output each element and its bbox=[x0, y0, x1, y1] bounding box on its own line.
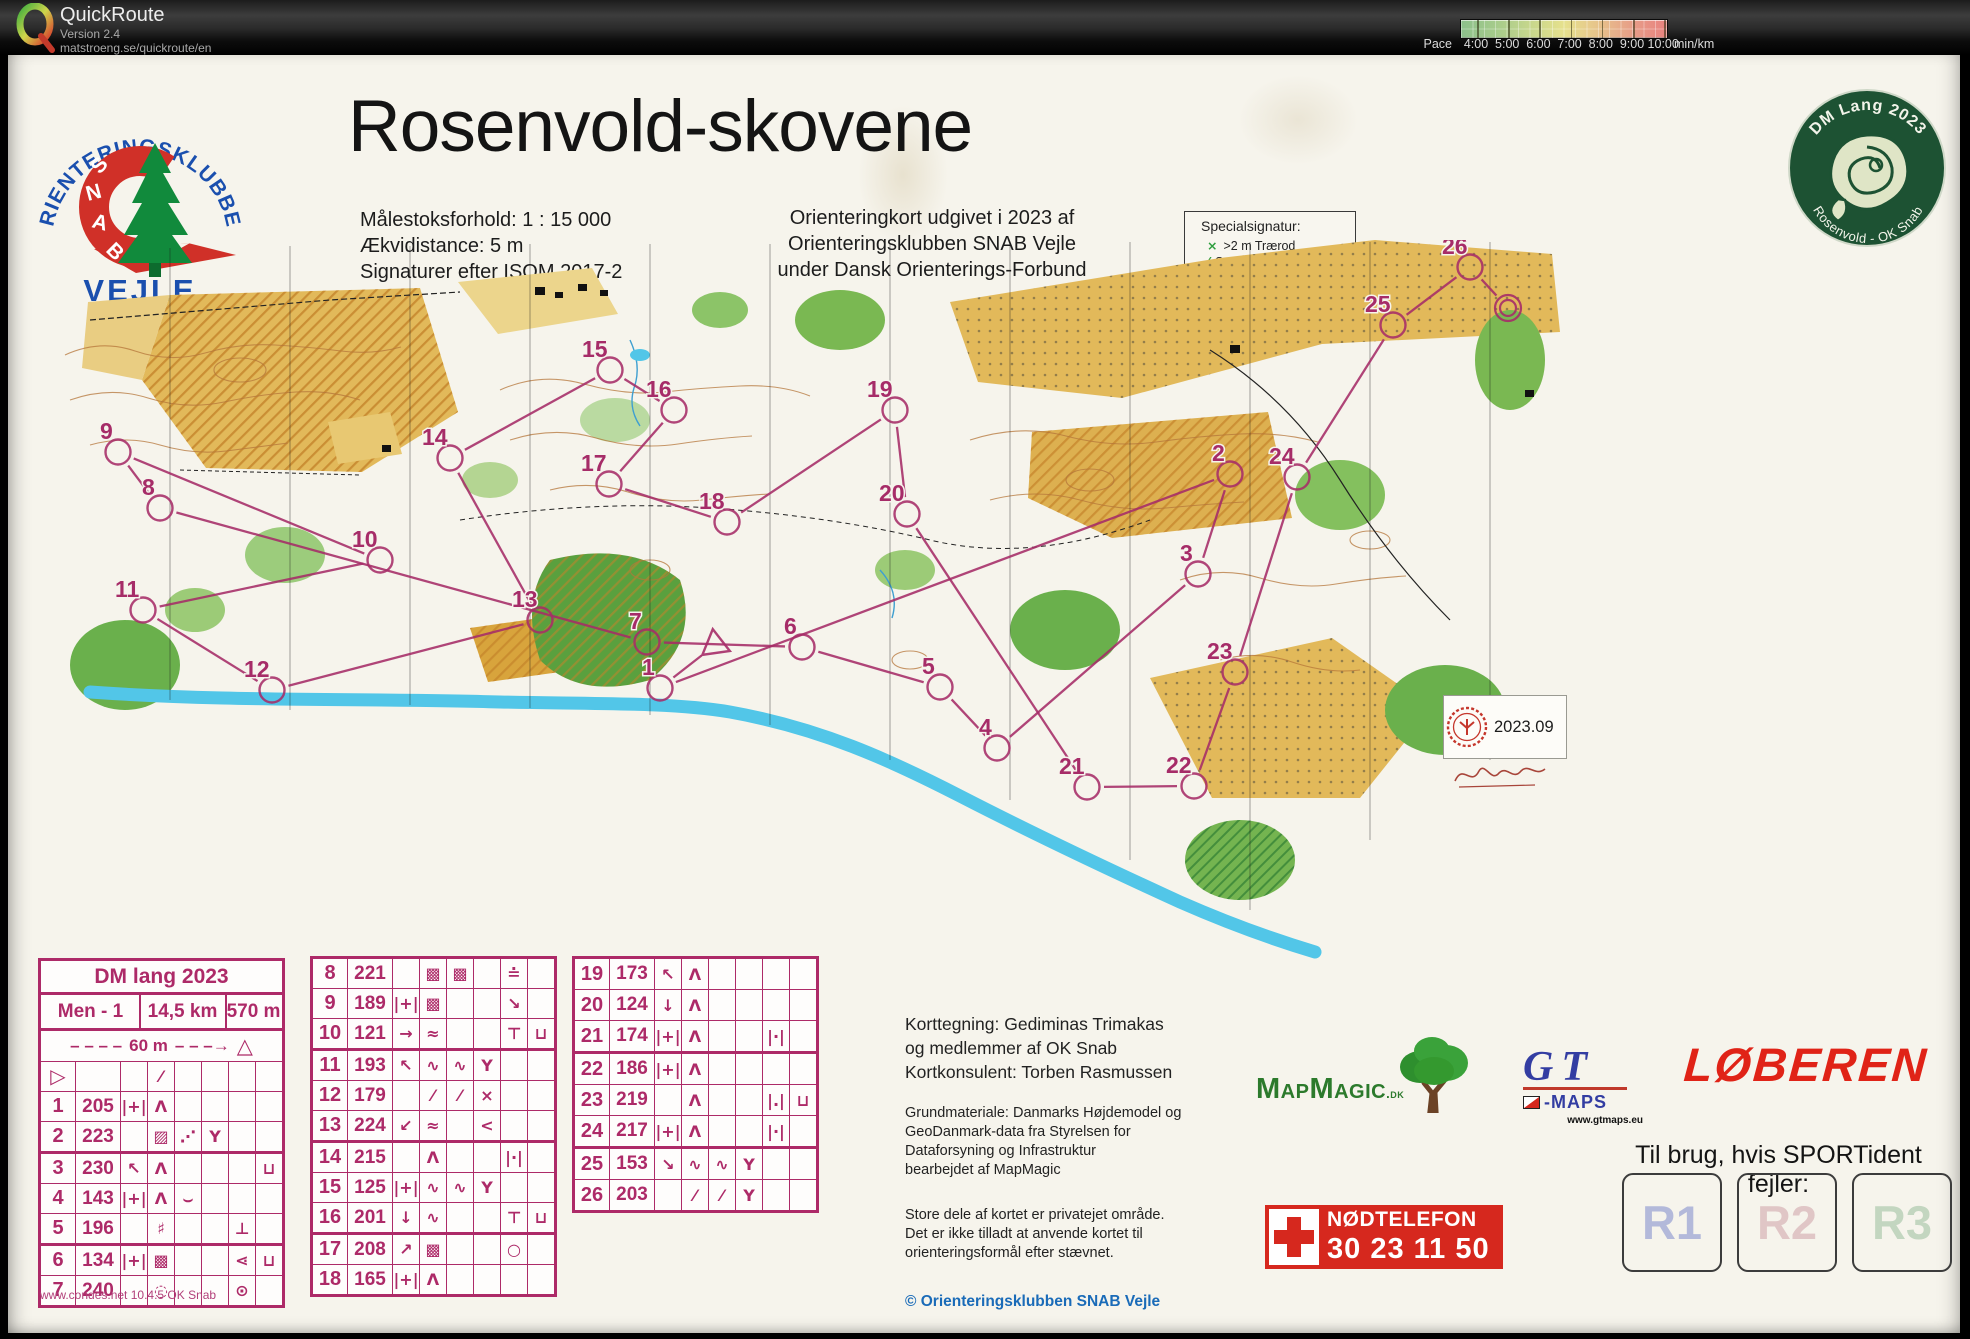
signature bbox=[1451, 759, 1555, 795]
control-symbol-cell bbox=[392, 1143, 419, 1172]
control-symbol-cell bbox=[708, 959, 735, 989]
control-number-cell: 6 bbox=[41, 1246, 75, 1275]
control-symbol-cell: ▨ bbox=[147, 1122, 174, 1151]
control-symbol-cell bbox=[527, 1081, 554, 1110]
control-symbol-cell: ↗ bbox=[392, 1235, 419, 1264]
loberen-logo: LØBEREN bbox=[1682, 1037, 1930, 1092]
pace-unit-label: min/km bbox=[1674, 37, 1714, 51]
control-symbol-cell: |+| bbox=[120, 1092, 147, 1121]
control-number: 21 bbox=[1059, 753, 1085, 779]
control-symbol-cell bbox=[120, 1062, 147, 1091]
control-symbol-cell: ⁄ bbox=[708, 1180, 735, 1210]
control-symbol-cell bbox=[762, 990, 789, 1020]
sportident-backup-boxes: R1 R2 R3 bbox=[1622, 1173, 1952, 1272]
control-symbol-cell bbox=[174, 1092, 201, 1121]
start-row: ▷⁄ bbox=[41, 1061, 282, 1091]
control-symbol-cell: |+| bbox=[392, 1173, 419, 1202]
control-number: 13 bbox=[512, 586, 538, 612]
control-row: 20124↓Λ bbox=[575, 989, 816, 1020]
gt-maps-text: -MAPS bbox=[1544, 1092, 1607, 1113]
control-symbol-cell bbox=[255, 1122, 282, 1151]
control-symbol-cell bbox=[527, 1051, 554, 1080]
control-symbol-cell bbox=[255, 1062, 282, 1091]
course-leg bbox=[676, 480, 1214, 682]
control-number: 22 bbox=[1166, 752, 1192, 778]
control-symbol-cell: Y bbox=[735, 1180, 762, 1210]
control-code-cell bbox=[75, 1062, 120, 1091]
control-symbol-cell: ⌣ bbox=[174, 1184, 201, 1213]
control-symbol-cell bbox=[446, 1111, 473, 1140]
control-symbol-cell bbox=[392, 1081, 419, 1110]
control-symbol-cell: |·| bbox=[500, 1143, 527, 1172]
control-number-cell: 25 bbox=[575, 1149, 609, 1179]
pace-tick-label: 6:00 bbox=[1526, 37, 1550, 51]
control-symbol-cell: ↖ bbox=[120, 1154, 147, 1183]
control-symbol-cell bbox=[735, 1054, 762, 1084]
control-symbol-cell bbox=[762, 959, 789, 989]
control-symbol-cell: ▩ bbox=[147, 1246, 174, 1275]
control-symbol-cell bbox=[228, 1092, 255, 1121]
text-line: Dataforsyning og Infrastruktur bbox=[905, 1142, 1245, 1161]
control-symbol-cell bbox=[446, 1235, 473, 1264]
event-badge: DM Lang 2023 Rosenvold - OK Snab bbox=[1786, 87, 1948, 249]
control-symbol-cell: ⊔ bbox=[255, 1154, 282, 1183]
control-symbol-cell bbox=[201, 1154, 228, 1183]
control-code-cell: 193 bbox=[347, 1051, 392, 1080]
control-symbol-cell: ↖ bbox=[392, 1051, 419, 1080]
special-symbols-title: Specialsignatur: bbox=[1201, 218, 1355, 234]
control-symbol-cell bbox=[174, 1246, 201, 1275]
course-name: Men - 1 bbox=[43, 995, 139, 1028]
control-symbol-cell: ⁄ bbox=[147, 1062, 174, 1091]
control-symbol-cell bbox=[201, 1184, 228, 1213]
start-triangle bbox=[702, 629, 729, 655]
control-symbol-cell bbox=[228, 1184, 255, 1213]
control-row: 8221▩▩≐ bbox=[313, 959, 554, 988]
control-symbol-cell: Λ bbox=[681, 1085, 708, 1115]
control-symbol-cell: < bbox=[473, 1111, 500, 1140]
paper-stain bbox=[1238, 75, 1358, 165]
pace-tick-label: 5:00 bbox=[1495, 37, 1519, 51]
control-number-cell: 26 bbox=[575, 1180, 609, 1210]
sheet-event-title: DM lang 2023 bbox=[41, 961, 282, 995]
control-symbol-cell: ▩ bbox=[446, 959, 473, 988]
course-leg bbox=[1306, 339, 1384, 462]
control-symbol-cell: Λ bbox=[681, 1021, 708, 1051]
mapmagic-tree-icon bbox=[1396, 1033, 1471, 1113]
control-number: 19 bbox=[867, 376, 893, 402]
control-symbol-cell: ≈ bbox=[419, 1111, 446, 1140]
course-leg bbox=[741, 419, 881, 512]
control-symbol-cell bbox=[708, 1021, 735, 1051]
control-row: 18165|+|Λ bbox=[313, 1264, 554, 1294]
control-symbol-cell: Λ bbox=[681, 1054, 708, 1084]
control-number-cell: 23 bbox=[575, 1085, 609, 1115]
text-line: Det er ikke tilladt at anvende kortet ti… bbox=[905, 1225, 1245, 1244]
emergency-phone-box: NØDTELEFON 30 23 11 50 bbox=[1265, 1205, 1503, 1269]
control-code-cell: 134 bbox=[75, 1246, 120, 1275]
control-number: 9 bbox=[100, 418, 113, 444]
control-symbol-cell bbox=[255, 1214, 282, 1243]
control-symbol-cell: ∿ bbox=[419, 1051, 446, 1080]
control-symbol-cell bbox=[789, 1116, 816, 1146]
control-symbol-cell bbox=[201, 1246, 228, 1275]
condes-footer: www.condes.net 10.4.5 OK Snab bbox=[40, 1288, 216, 1302]
pace-tick bbox=[1633, 20, 1635, 38]
control-row: 14215Λ|·| bbox=[313, 1140, 554, 1172]
control-number-cell: 9 bbox=[313, 989, 347, 1018]
control-number: 20 bbox=[879, 480, 905, 506]
control-symbol-cell bbox=[255, 1276, 282, 1305]
course-leg bbox=[1104, 786, 1177, 787]
control-symbol-cell bbox=[500, 1173, 527, 1202]
mapmagic-logo: MapMagic.dk bbox=[1256, 1033, 1471, 1113]
control-number: 17 bbox=[581, 450, 607, 476]
control-symbol-cell: ▩ bbox=[419, 989, 446, 1018]
pace-label: Pace bbox=[1416, 37, 1452, 51]
control-symbol-cell: Y bbox=[201, 1122, 228, 1151]
control-code-cell: 203 bbox=[609, 1180, 654, 1210]
control-number: 18 bbox=[699, 488, 725, 514]
control-symbol-cell: ⊥ bbox=[228, 1214, 255, 1243]
control-row: 25153↘∿∿Y bbox=[575, 1146, 816, 1179]
credits-block: Korttegning: Gediminas Trimakasog medlem… bbox=[905, 1012, 1245, 1311]
control-symbol-cell: ▩ bbox=[419, 959, 446, 988]
base-material-credits: Grundmateriale: Danmarks Højdemodel ogGe… bbox=[905, 1104, 1245, 1180]
control-symbol-cell bbox=[789, 1149, 816, 1179]
control-code-cell: 230 bbox=[75, 1154, 120, 1183]
control-number-cell: 3 bbox=[41, 1154, 75, 1183]
control-symbol-cell bbox=[120, 1214, 147, 1243]
control-symbol-cell: ▩ bbox=[419, 1235, 446, 1264]
pace-gradient-bar bbox=[1460, 19, 1668, 39]
pace-tick bbox=[1664, 20, 1666, 38]
control-number: 8 bbox=[142, 474, 155, 500]
control-symbol-cell bbox=[708, 1085, 735, 1115]
control-symbol-cell: ∿ bbox=[446, 1173, 473, 1202]
control-symbol-cell: × bbox=[473, 1081, 500, 1110]
control-symbol-cell bbox=[446, 1265, 473, 1294]
control-row: 21174|+|Λ|·| bbox=[575, 1020, 816, 1051]
control-symbol-cell: Λ bbox=[147, 1092, 174, 1121]
control-description-sheet-2: 8221▩▩≐9189|+|▩↘10121→≈⊤⊔11193↖∿∿Y12179⁄… bbox=[310, 956, 557, 1297]
finish-triangle-icon: △ bbox=[237, 1034, 253, 1058]
control-number-cell: 14 bbox=[313, 1143, 347, 1172]
control-code-cell: 125 bbox=[347, 1173, 392, 1202]
control-code-cell: 143 bbox=[75, 1184, 120, 1213]
control-row: 4143|+|Λ⌣ bbox=[41, 1183, 282, 1213]
stamp-emblem-icon bbox=[1444, 704, 1490, 750]
control-symbol-cell: ⊤ bbox=[500, 1019, 527, 1048]
control-number-cell: 19 bbox=[575, 959, 609, 989]
control-symbol-cell: ⁄ bbox=[446, 1081, 473, 1110]
quickroute-window: { "app": {"name": "QuickRoute", "version… bbox=[0, 0, 1970, 1339]
control-number: 25 bbox=[1365, 291, 1391, 317]
control-number-cell: 12 bbox=[313, 1081, 347, 1110]
text-line: Grundmateriale: Danmarks Højdemodel og bbox=[905, 1104, 1245, 1123]
control-symbol-cell bbox=[527, 1173, 554, 1202]
control-symbol-cell: Λ bbox=[681, 990, 708, 1020]
text-line: orienteringsformål efter stævnet. bbox=[905, 1244, 1245, 1263]
control-symbol-cell bbox=[201, 1062, 228, 1091]
control-symbol-cell: ∿ bbox=[419, 1173, 446, 1202]
map-title: Rosenvold-skovene bbox=[348, 85, 972, 168]
control-symbol-cell bbox=[473, 1265, 500, 1294]
control-symbol-cell bbox=[735, 1021, 762, 1051]
control-number-cell: 8 bbox=[313, 959, 347, 988]
control-symbol-cell bbox=[735, 1116, 762, 1146]
control-number-cell: 5 bbox=[41, 1214, 75, 1243]
control-number: 26 bbox=[1442, 240, 1468, 259]
control-symbol-cell bbox=[527, 959, 554, 988]
control-symbol-cell: ⊔ bbox=[527, 1203, 554, 1232]
app-version: Version 2.4 bbox=[60, 27, 120, 41]
control-symbol-cell bbox=[789, 1054, 816, 1084]
pace-tick-label: 9:00 bbox=[1620, 37, 1644, 51]
control-symbol-cell bbox=[255, 1184, 282, 1213]
control-symbol-cell: ○ bbox=[500, 1235, 527, 1264]
control-description-sheet-1: DM lang 2023 Men - 1 14,5 km 570 m – – –… bbox=[38, 958, 285, 1308]
control-code-cell: 201 bbox=[347, 1203, 392, 1232]
mapping-credits: Korttegning: Gediminas Trimakasog medlem… bbox=[905, 1012, 1245, 1084]
control-symbol-cell bbox=[527, 1143, 554, 1172]
pace-tick bbox=[1571, 20, 1573, 38]
control-symbol-cell bbox=[500, 1265, 527, 1294]
text-line: Korttegning: Gediminas Trimakas bbox=[905, 1012, 1245, 1036]
control-code-cell: 219 bbox=[609, 1085, 654, 1115]
control-symbol-cell: ↓ bbox=[392, 1203, 419, 1232]
text-line: bearbejdet af MapMagic bbox=[905, 1161, 1245, 1180]
control-symbol-cell bbox=[527, 1265, 554, 1294]
control-row: 16201↓∿⊤⊔ bbox=[313, 1202, 554, 1232]
control-code-cell: 179 bbox=[347, 1081, 392, 1110]
pace-tick bbox=[1508, 20, 1510, 38]
app-header-bar: QuickRoute Version 2.4 matstroeng.se/qui… bbox=[0, 0, 1970, 55]
control-symbol-cell: Λ bbox=[147, 1154, 174, 1183]
control-symbol-cell: ≈ bbox=[419, 1019, 446, 1048]
text-line: og medlemmer af OK Snab bbox=[905, 1036, 1245, 1060]
control-symbol-cell: |·| bbox=[762, 1021, 789, 1051]
control-code-cell: 215 bbox=[347, 1143, 392, 1172]
control-symbol-cell: Y bbox=[735, 1149, 762, 1179]
control-symbol-cell bbox=[473, 1203, 500, 1232]
text-line: Kortkonsulent: Torben Rasmussen bbox=[905, 1060, 1245, 1084]
emergency-title: NØDTELEFON bbox=[1327, 1208, 1490, 1232]
control-symbol-cell bbox=[735, 1085, 762, 1115]
gt-url: www.gtmaps.eu bbox=[1523, 1115, 1643, 1126]
control-number: 23 bbox=[1207, 638, 1233, 664]
control-description-sheet-3: 19173↖Λ20124↓Λ21174|+|Λ|·|22186|+|Λ23219… bbox=[572, 956, 819, 1213]
control-row: 15125|+|∿∿Y bbox=[313, 1172, 554, 1202]
control-symbol-cell: ⋖ bbox=[228, 1246, 255, 1275]
control-number: 6 bbox=[784, 613, 797, 639]
control-symbol-cell bbox=[654, 1180, 681, 1210]
course-leg bbox=[625, 489, 711, 517]
control-code-cell: 121 bbox=[347, 1019, 392, 1048]
control-symbol-cell bbox=[174, 1062, 201, 1091]
control-number: 24 bbox=[1269, 443, 1295, 469]
emergency-phone-number: 30 23 11 50 bbox=[1327, 1233, 1490, 1266]
control-symbol-cell bbox=[654, 1085, 681, 1115]
pace-tick-label: 10:00 bbox=[1648, 37, 1679, 51]
coast-water bbox=[90, 692, 1315, 952]
app-title: QuickRoute bbox=[60, 4, 165, 27]
gtmaps-logo: GT -MAPS www.gtmaps.eu bbox=[1523, 1047, 1643, 1126]
control-symbol-cell: |+| bbox=[654, 1116, 681, 1146]
control-symbol-cell: ↓ bbox=[654, 990, 681, 1020]
control-symbol-cell: ∿ bbox=[446, 1051, 473, 1080]
control-code-cell: 173 bbox=[609, 959, 654, 989]
control-symbol-cell: ⁄ bbox=[419, 1081, 446, 1110]
control-code-cell: 174 bbox=[609, 1021, 654, 1051]
course-climb: 570 m bbox=[225, 995, 281, 1028]
control-symbol-cell: ⊔ bbox=[255, 1246, 282, 1275]
control-symbol-cell bbox=[708, 1054, 735, 1084]
text-line: Målestoksforhold: 1 : 15 000 bbox=[360, 207, 622, 233]
control-symbol-cell: Λ bbox=[147, 1184, 174, 1213]
text-line: GeoDanmark-data fra Styrelsen for bbox=[905, 1123, 1245, 1142]
control-row: 26203⁄⁄Y bbox=[575, 1179, 816, 1210]
control-symbol-cell: Λ bbox=[681, 959, 708, 989]
text-line: Orienteringkort udgivet i 2023 af bbox=[756, 205, 1108, 231]
control-code-cell: 153 bbox=[609, 1149, 654, 1179]
control-symbol-cell bbox=[174, 1154, 201, 1183]
control-symbol-cell bbox=[735, 959, 762, 989]
control-number-cell: 10 bbox=[313, 1019, 347, 1048]
pace-tick-label: 7:00 bbox=[1557, 37, 1581, 51]
control-number-cell: 17 bbox=[313, 1235, 347, 1264]
control-row: 9189|+|▩↘ bbox=[313, 988, 554, 1018]
control-number: 1 bbox=[642, 654, 655, 680]
control-symbol-cell: |·| bbox=[762, 1116, 789, 1146]
control-code-cell: 189 bbox=[347, 989, 392, 1018]
control-symbol-cell: ≐ bbox=[500, 959, 527, 988]
control-number-cell: 21 bbox=[575, 1021, 609, 1051]
course-leg bbox=[818, 652, 923, 683]
control-row: 10121→≈⊤⊔ bbox=[313, 1018, 554, 1048]
control-symbol-cell bbox=[228, 1154, 255, 1183]
control-symbol-cell: → bbox=[392, 1019, 419, 1048]
control-symbol-cell: ∿ bbox=[681, 1149, 708, 1179]
stamp-code: 2023.09 bbox=[1494, 718, 1554, 737]
control-symbol-cell bbox=[500, 1051, 527, 1080]
control-symbol-cell: Λ bbox=[419, 1143, 446, 1172]
orienteering-map: 1234567891011121314151617181920212223242… bbox=[30, 240, 1560, 1000]
control-code-cell: 224 bbox=[347, 1111, 392, 1140]
control-symbol-cell: |+| bbox=[654, 1054, 681, 1084]
control-code-cell: 165 bbox=[347, 1265, 392, 1294]
control-symbol-cell: ⊙ bbox=[228, 1276, 255, 1305]
course-leg bbox=[134, 458, 365, 553]
control-number: 11 bbox=[115, 576, 140, 602]
pace-legend: Pace min/km 4:005:006:007:008:009:0010:0… bbox=[1416, 0, 1786, 55]
control-row: 11193↖∿∿Y bbox=[313, 1048, 554, 1080]
control-number-cell: 15 bbox=[313, 1173, 347, 1202]
control-symbol-cell: ∿ bbox=[708, 1149, 735, 1179]
control-symbol-cell bbox=[446, 1019, 473, 1048]
control-symbol-cell bbox=[527, 1235, 554, 1264]
control-symbol-cell: ↙ bbox=[392, 1111, 419, 1140]
control-symbol-cell bbox=[789, 959, 816, 989]
control-symbol-cell: Y bbox=[473, 1173, 500, 1202]
control-number-cell: 24 bbox=[575, 1116, 609, 1146]
pace-tick-label: 4:00 bbox=[1464, 37, 1488, 51]
control-symbol-cell bbox=[527, 1111, 554, 1140]
map-terrain bbox=[65, 240, 1560, 952]
control-symbol-cell: ∿ bbox=[419, 1203, 446, 1232]
control-symbol-cell bbox=[708, 990, 735, 1020]
control-symbol-cell: |+| bbox=[654, 1021, 681, 1051]
control-number: 10 bbox=[352, 526, 378, 552]
control-symbol-cell bbox=[473, 1235, 500, 1264]
control-symbol-cell: ↖ bbox=[654, 959, 681, 989]
control-row: 19173↖Λ bbox=[575, 959, 816, 989]
control-number-cell: 22 bbox=[575, 1054, 609, 1084]
control-symbol-cell bbox=[228, 1062, 255, 1091]
app-url: matstroeng.se/quickroute/en bbox=[60, 41, 211, 55]
control-number-cell: 18 bbox=[313, 1265, 347, 1294]
control-number: 16 bbox=[646, 376, 672, 402]
control-symbol-cell bbox=[527, 989, 554, 1018]
control-symbol-cell: ⊤ bbox=[500, 1203, 527, 1232]
funnel-arrow: – – –→ bbox=[175, 1036, 230, 1056]
control-symbol-cell: ⊔ bbox=[527, 1019, 554, 1048]
control-symbol-cell: Λ bbox=[681, 1116, 708, 1146]
copyright-line: © Orienteringsklubben SNAB Vejle bbox=[905, 1293, 1245, 1311]
backup-box-r1: R1 bbox=[1622, 1173, 1722, 1272]
control-code-cell: 124 bbox=[609, 990, 654, 1020]
control-number: 15 bbox=[582, 336, 608, 362]
control-row: 12179⁄⁄× bbox=[313, 1080, 554, 1110]
control-symbol-cell bbox=[735, 990, 762, 1020]
control-number: 3 bbox=[1180, 540, 1193, 566]
control-symbol-cell: Λ bbox=[419, 1265, 446, 1294]
control-row: 17208↗▩○ bbox=[313, 1232, 554, 1264]
control-symbol-cell: |+| bbox=[392, 989, 419, 1018]
revision-stamp: 2023.09 bbox=[1443, 695, 1567, 759]
pace-tick-label: 8:00 bbox=[1589, 37, 1613, 51]
mapmagic-wordmark: MapMagic.dk bbox=[1256, 1073, 1404, 1106]
control-row: 6134|+|▩⋖⊔ bbox=[41, 1243, 282, 1275]
funnel-distance: 60 m bbox=[129, 1036, 168, 1056]
control-symbol-cell bbox=[473, 1019, 500, 1048]
control-row: 23219Λ|.|⊔ bbox=[575, 1084, 816, 1115]
control-number-cell: ▷ bbox=[41, 1062, 75, 1091]
control-symbol-cell bbox=[201, 1214, 228, 1243]
course-length: 14,5 km bbox=[139, 995, 225, 1028]
control-symbol-cell bbox=[446, 1143, 473, 1172]
control-symbol-cell bbox=[789, 1180, 816, 1210]
control-code-cell: 217 bbox=[609, 1116, 654, 1146]
gt-letters: GT bbox=[1523, 1047, 1643, 1087]
control-symbol-cell bbox=[255, 1092, 282, 1121]
backup-box-r2: R2 bbox=[1737, 1173, 1837, 1272]
control-symbol-cell bbox=[762, 1180, 789, 1210]
control-symbol-cell bbox=[789, 990, 816, 1020]
control-symbol-cell bbox=[392, 959, 419, 988]
control-symbol-cell bbox=[789, 1021, 816, 1051]
control-code-cell: 221 bbox=[347, 959, 392, 988]
control-code-cell: 223 bbox=[75, 1122, 120, 1151]
control-number: 5 bbox=[922, 653, 935, 679]
control-symbol-cell: |+| bbox=[392, 1265, 419, 1294]
control-symbol-cell bbox=[120, 1122, 147, 1151]
control-symbol-cell: ↘ bbox=[500, 989, 527, 1018]
control-number-cell: 2 bbox=[41, 1122, 75, 1151]
control-symbol-cell bbox=[201, 1092, 228, 1121]
backup-box-r3: R3 bbox=[1852, 1173, 1952, 1272]
control-symbol-cell bbox=[708, 1116, 735, 1146]
